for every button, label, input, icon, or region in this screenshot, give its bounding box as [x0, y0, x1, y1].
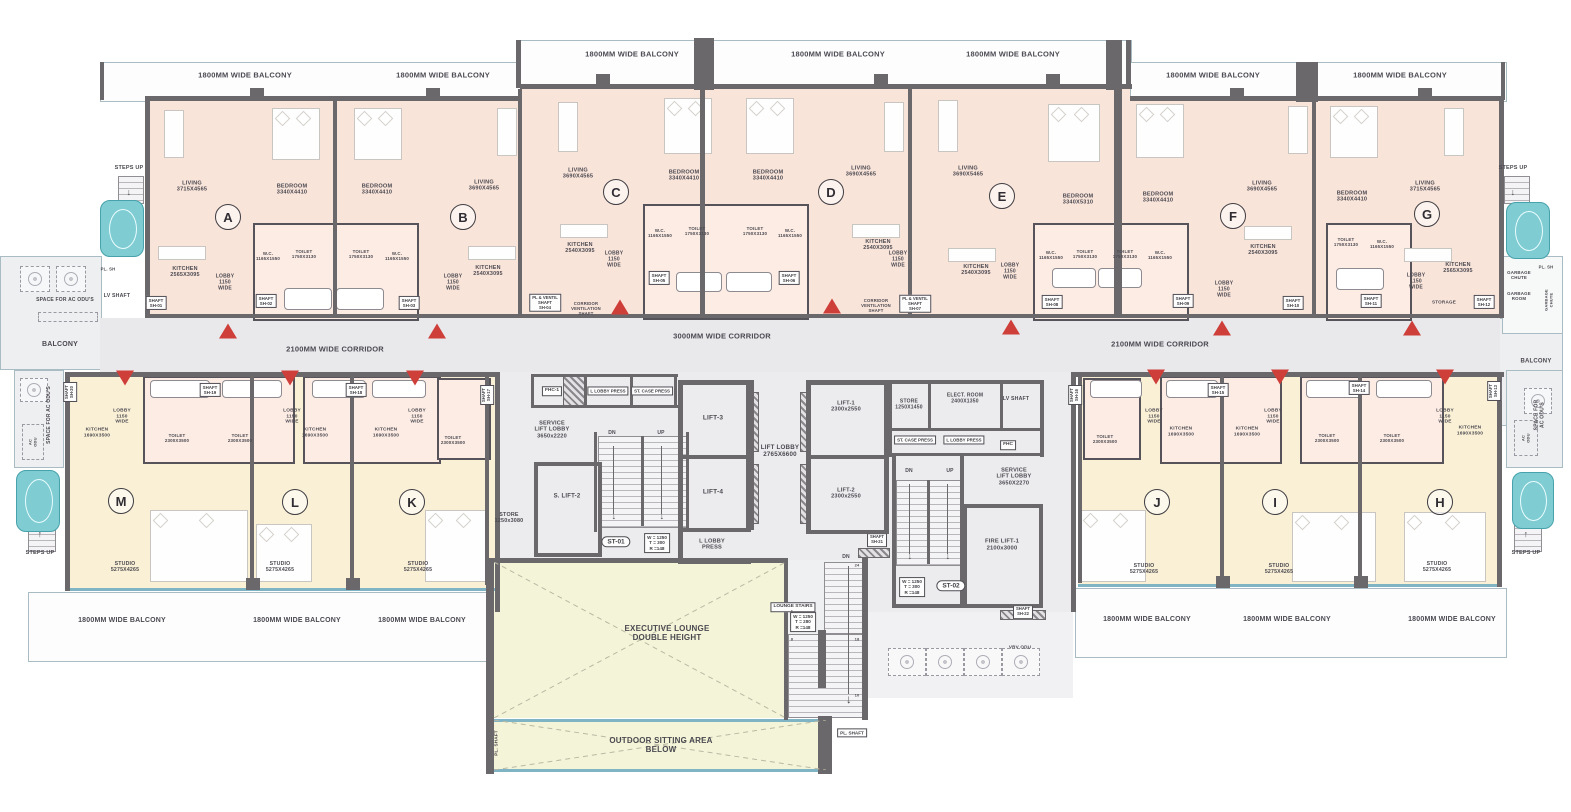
room-label: STEPS UP	[115, 165, 144, 171]
wall-segment	[531, 405, 679, 408]
room-label: LOBBY 1150 WIDE	[1001, 263, 1020, 280]
room-label: CORRIDOR VENTILATION SHAFT	[861, 299, 891, 313]
bathtub	[336, 288, 384, 310]
pillow	[1083, 513, 1099, 529]
shaft-label: L LOBBY PRESS	[943, 435, 984, 444]
pillow	[153, 513, 169, 529]
pillow	[378, 111, 394, 127]
wall-segment	[1078, 377, 1082, 583]
room-label: DN	[842, 555, 850, 561]
stair-flight	[788, 634, 864, 718]
room-label: BEDROOM 3340X4410	[1337, 191, 1368, 204]
room-label: GARBAGE ROOM	[1507, 291, 1531, 301]
room-label: 10	[855, 694, 860, 699]
room-label: CORRIDOR VENTILATION SHAFT	[571, 302, 601, 316]
furniture-piece	[497, 108, 517, 156]
room-label: LIVING 3690X4565	[563, 168, 593, 181]
room-label: ↓	[660, 511, 665, 521]
room-label: TOILET 1750X3130	[1073, 249, 1097, 259]
room-label: STUDIO 5275X4265	[1423, 562, 1451, 574]
ac-odu-unit	[1002, 648, 1040, 676]
wall-segment	[1000, 382, 1003, 429]
wall-segment	[1501, 62, 1505, 100]
room-label: SPACE FOR AC ODU'S	[47, 386, 53, 444]
wall-segment	[908, 89, 912, 314]
pillow	[770, 101, 786, 117]
entry-triangle	[1147, 370, 1165, 385]
wall-segment	[534, 553, 602, 557]
room-label: LOBBY 1150 WIDE	[216, 274, 235, 291]
room-label: W.C. 1165X1550	[1039, 250, 1063, 260]
pillow	[1354, 109, 1370, 125]
room-label: TOILET 1750X3130	[1334, 237, 1358, 247]
room-label: TOILET 2300X3500	[441, 435, 465, 445]
pillow	[749, 101, 765, 117]
bathroom-block	[643, 204, 809, 320]
jacuzzi	[16, 470, 60, 532]
room-label: ↓	[908, 551, 913, 561]
furniture-piece	[1244, 226, 1292, 240]
room-label: W.C. 1165X1550	[1148, 250, 1172, 260]
room-label: KITCHEN 2540X3095	[473, 265, 502, 277]
shaft-label: PL. SHAFT	[837, 728, 867, 737]
furniture-piece	[948, 248, 996, 262]
room-label: BEDROOM 3340X5310	[1063, 194, 1094, 207]
ac-odu-outline: AC ODU	[22, 424, 44, 460]
bed	[1136, 104, 1184, 158]
room-label: BALCONY	[1520, 359, 1551, 366]
room-label: LOBBY 1150 WIDE	[605, 251, 624, 268]
room-label: STEPS UP	[26, 550, 55, 556]
shaft-label: SHAFT SH-17	[480, 385, 494, 405]
shaft-label: PL & VENTIL SHAFT SH-04	[529, 294, 561, 312]
wall-segment	[486, 558, 494, 720]
entry-triangle	[281, 371, 299, 386]
room-label: STUDIO 5275X4265	[1130, 564, 1158, 576]
balcony-glazing-line	[1078, 584, 1498, 587]
room-label: LIFT-4	[703, 488, 723, 495]
room-label: 1800MM WIDE BALCONY	[198, 72, 292, 81]
unit-marker-d: D	[818, 179, 844, 205]
room-label: W.C. 1165X1550	[778, 228, 802, 238]
room-label: TOILET 2300X3500	[165, 433, 189, 443]
ac-odu-label: AC ODU	[1521, 433, 1530, 444]
shaft-label: PL & VENTIL SHAFT SH-07	[899, 295, 931, 313]
pillow	[1295, 515, 1311, 531]
unit-marker-l: L	[282, 489, 308, 515]
room-label: 3000MM WIDE CORRIDOR	[673, 333, 771, 342]
room-label: LOBBY 1150 WIDE	[113, 409, 131, 426]
room-label: FIRE LIFT-1 2100x3000	[985, 538, 1019, 551]
room-label: BEDROOM 3340X4410	[362, 184, 393, 197]
bathtub	[284, 288, 332, 310]
pillow	[284, 527, 300, 543]
room-label: 1800MM WIDE BALCONY	[1103, 616, 1191, 624]
room-label: S. LIFT-2	[554, 494, 581, 501]
room-label: VRV ODU	[1009, 644, 1031, 649]
shaft-label: SHAFT SH-02	[256, 294, 277, 308]
room-label: BALCONY	[42, 341, 78, 349]
wall-segment	[888, 380, 892, 457]
wall-segment	[1358, 377, 1362, 583]
room-label: L LOBBY PRESS	[699, 539, 725, 552]
shaft-label: SHAFT SH-13	[1487, 381, 1501, 401]
unit-marker-f: F	[1220, 203, 1246, 229]
shaft-label: SHAFT SH-03	[399, 296, 420, 310]
room-label: BEDROOM 3340X4410	[1143, 192, 1174, 205]
wall-segment	[928, 382, 931, 429]
room-label: W.C. 1165X1550	[648, 228, 672, 238]
furniture-piece	[560, 224, 608, 238]
wall-segment	[426, 88, 440, 100]
wall-segment	[874, 74, 888, 86]
room-label: LIFT-3	[703, 414, 723, 421]
wall-segment	[947, 484, 948, 554]
wall-segment	[678, 380, 751, 385]
room-label: 1800MM WIDE BALCONY	[791, 51, 885, 60]
room-label: 1800MM WIDE BALCONY	[966, 51, 1060, 60]
room-label: BEDROOM 3340X4410	[277, 184, 308, 197]
wall-segment	[531, 374, 678, 377]
ac-odu-unit	[964, 648, 1002, 676]
pillow	[428, 513, 444, 529]
room-label: LIFT-1 2300x2550	[831, 401, 861, 414]
room-label: 1	[791, 610, 793, 615]
room-label: STORE 1250X1450	[895, 399, 922, 411]
furniture-piece	[164, 110, 184, 158]
entry-triangle	[406, 371, 424, 386]
shaft-hatch	[563, 376, 585, 408]
unit-marker-c: C	[603, 179, 629, 205]
wall-segment	[596, 74, 610, 86]
shaft-label: SHAFT SH-08	[1042, 295, 1063, 309]
wall-segment	[1220, 377, 1224, 583]
room-label: 24	[855, 564, 860, 569]
shaft-label: SHAFT SH-16	[1068, 385, 1082, 405]
wall-segment	[888, 428, 1042, 431]
room-label: STUDIO 5275X4265	[266, 562, 294, 574]
room-label: TOILET 1750X3130	[292, 249, 316, 259]
room-label: ↓	[946, 551, 951, 561]
room-label: KITCHEN 1690X3500	[302, 427, 328, 438]
room-label: 1800MM WIDE BALCONY	[253, 617, 341, 625]
pillow	[456, 513, 472, 529]
room-label: LV SHAFT	[104, 294, 131, 300]
wall-segment	[65, 372, 70, 591]
wall-segment	[888, 380, 1042, 384]
room-label: KITCHEN 2540X3095	[961, 264, 990, 276]
room-label: LIVING 3690X5465	[953, 166, 983, 179]
room-label: LOBBY 1150 WIDE	[444, 274, 463, 291]
room-label: STEPS UP	[1499, 165, 1528, 171]
room-label: KITCHEN 1690X3500	[1234, 426, 1260, 437]
bathtub	[726, 272, 772, 292]
room-label: UP	[946, 469, 953, 475]
shaft-label: SHAFT SH-05	[649, 271, 670, 285]
wall-segment	[520, 84, 1132, 89]
room-label: LIVING 3715X4565	[1410, 181, 1440, 194]
entry-triangle	[611, 300, 629, 315]
room-label: KITCHEN 1690X3500	[373, 427, 399, 438]
unit-marker-g: G	[1414, 201, 1440, 227]
room-label: BEDROOM 3340X4410	[753, 170, 784, 183]
pillow	[199, 513, 215, 529]
wall-segment	[1418, 88, 1432, 100]
bathtub	[1376, 380, 1432, 398]
room-label: W.C. 1165X1550	[385, 251, 409, 261]
wall-segment	[100, 62, 104, 100]
wall-segment	[818, 630, 826, 688]
pillow	[1334, 515, 1350, 531]
shaft-label: SHAFT SH-10	[1283, 296, 1304, 310]
wall-segment	[516, 40, 521, 88]
wall-segment	[1497, 372, 1502, 587]
room-label: 1800MM WIDE BALCONY	[378, 617, 466, 625]
ac-odu-unit	[888, 648, 926, 676]
wall-segment	[1296, 62, 1318, 102]
furniture-piece	[884, 102, 904, 152]
room-label: TOILET 1750X3130	[685, 226, 709, 236]
shaft-label: SHAFT SH-09	[1173, 294, 1194, 308]
wall-segment	[1039, 504, 1043, 608]
pillow	[1407, 515, 1423, 531]
entry-triangle	[823, 299, 841, 314]
jacuzzi	[1512, 472, 1554, 529]
room-label: TOILET 2300X3500	[1093, 434, 1117, 444]
wall-segment	[674, 374, 677, 408]
shaft-label: ST-02	[936, 580, 965, 591]
entry-triangle	[1436, 370, 1454, 385]
room-label: 1800MM WIDE BALCONY	[1353, 72, 1447, 81]
jacuzzi	[1506, 202, 1550, 259]
wall-segment	[495, 372, 500, 612]
room-label: DN	[905, 469, 913, 475]
room-label: 2100MM WIDE CORRIDOR	[286, 346, 384, 355]
balcony-glazing-line	[494, 769, 826, 772]
shaft-label: SHAFT SH-11	[1361, 294, 1382, 308]
bed	[425, 510, 487, 582]
wall-segment	[250, 377, 254, 585]
furniture-piece	[852, 224, 900, 238]
room-label: TOILET 2300X3500	[228, 433, 252, 443]
shaft-label: SHAFT SH-21	[867, 533, 887, 547]
room-label: SPACE FOR AC ODU'S	[1534, 400, 1546, 431]
room-label: DN	[608, 431, 616, 437]
shaft-label: SHAFT SH-01	[146, 296, 167, 310]
furniture-piece	[1404, 248, 1452, 262]
wall-segment	[594, 432, 597, 532]
shaft-label: W = 1250 T = 300 R =148	[644, 533, 670, 553]
wall-segment	[909, 484, 910, 554]
ac-odu-unit	[56, 266, 86, 292]
room-label: ↓	[1511, 187, 1516, 197]
bed	[1330, 106, 1378, 158]
wall-segment	[892, 604, 964, 608]
entry-triangle	[1403, 321, 1421, 336]
wall-segment	[486, 558, 786, 563]
bathtub	[676, 272, 722, 292]
wall-segment	[1312, 101, 1316, 314]
wall-segment	[694, 38, 714, 90]
furniture-piece	[158, 246, 206, 260]
room-label: STUDIO 5275X4265	[404, 562, 432, 574]
wall-segment	[1046, 74, 1060, 86]
room-label: 2100MM WIDE CORRIDOR	[1111, 341, 1209, 350]
room-label: KITCHEN 2540X3095	[1248, 244, 1277, 256]
wall-segment	[963, 504, 1043, 508]
floor-plan-canvas: AC ODUAC ODUSHAFT SH-01SHAFT SH-02SHAFT …	[0, 0, 1571, 812]
room-label: ELECT. ROOM 2400X1350	[947, 393, 983, 405]
unit-marker-b: B	[450, 204, 476, 230]
wall-segment	[1106, 40, 1122, 90]
room-label: LOBBY 1150 WIDE	[1407, 273, 1426, 290]
furniture-piece	[468, 246, 516, 260]
wall-segment	[250, 88, 264, 100]
wall-segment	[818, 716, 832, 774]
balcony-glazing-line	[68, 588, 496, 591]
room-label: SERVICE LIFT LOBBY 3650X2270	[997, 467, 1032, 486]
pillow	[275, 111, 291, 127]
room-label: LIFT LOBBY 2765X6600	[761, 444, 799, 458]
wall-segment	[333, 101, 337, 314]
wall-segment	[963, 504, 967, 608]
shaft-label: W = 1250 T = 280 R =148	[790, 612, 816, 632]
pillow	[667, 101, 683, 117]
wall-segment	[686, 432, 689, 532]
pillow	[357, 111, 373, 127]
room-label: LV SHAFT	[1003, 397, 1030, 403]
ac-odu-unit	[20, 266, 50, 292]
wall-segment	[848, 566, 849, 694]
room-label: STUDIO 5275X4265	[1265, 564, 1293, 576]
room-label: LIVING 3690X4565	[469, 180, 499, 193]
ac-odu-label: AC ODU	[28, 437, 37, 447]
room-label: 1800MM WIDE BALCONY	[396, 72, 490, 81]
pillow	[1160, 107, 1176, 123]
room-label: 1800MM WIDE BALCONY	[585, 51, 679, 60]
shaft-hatch	[858, 548, 890, 558]
shaft-label: FHC	[1000, 440, 1016, 450]
furniture-piece	[938, 100, 958, 152]
wall-segment	[892, 456, 896, 608]
furniture-piece	[1444, 108, 1464, 156]
room-label: KITCHEN 1690X3500	[1457, 425, 1483, 436]
shaft-label: ST-01	[601, 536, 630, 547]
room-label: SPACE FOR AC ODU'S	[36, 298, 94, 304]
ac-odu-unit	[20, 378, 48, 402]
room-label: 1800MM WIDE BALCONY	[78, 617, 166, 625]
room-label: TOILET 1750X3130	[1113, 249, 1137, 259]
pillow	[1051, 107, 1067, 123]
shaft-label: ST. CASE PRESS	[631, 386, 673, 395]
room-label: KITCHEN 1690X3500	[1168, 426, 1194, 437]
wall-segment	[145, 96, 150, 318]
bed	[746, 98, 794, 154]
shaft-label: SHAFT SH-19	[200, 383, 221, 397]
wall-segment	[1230, 88, 1244, 100]
room-label: 8	[791, 638, 793, 643]
room-label: BEDROOM 3340X4410	[669, 170, 700, 183]
room-label: LOBBY 1150 WIDE	[1436, 409, 1454, 426]
entry-triangle	[1213, 321, 1231, 336]
unit-marker-h: H	[1427, 489, 1453, 515]
floor-zone	[28, 592, 499, 662]
wall-segment	[1071, 372, 1076, 612]
room-label: ↓	[846, 693, 852, 707]
pillow	[296, 111, 312, 127]
room-label: 1800MM WIDE BALCONY	[1243, 616, 1331, 624]
room-label: LOBBY 1150 WIDE	[889, 251, 908, 268]
room-label: LOBBY 1150 WIDE	[1215, 281, 1234, 298]
floor-zone	[520, 40, 1132, 90]
shaft-label: SHAFT SH-18	[346, 383, 367, 397]
wall-segment	[534, 462, 538, 557]
shaft-label: ST. CASE PRESS	[894, 435, 936, 444]
shaft-label: W = 1250 T = 300 R =148	[899, 577, 925, 597]
room-label: LOBBY 1150 WIDE	[1264, 409, 1282, 426]
room-label: PL. SHAFT	[493, 730, 498, 756]
room-label: GARBAGE CHUTE	[1507, 270, 1531, 280]
room-label: STORAGE	[1432, 299, 1456, 304]
shaft-label: L LOBBY PRESS	[587, 386, 628, 395]
shaft-label: SHAFT SH-12	[1474, 295, 1495, 309]
room-label: TOILET 2300X3500	[1380, 433, 1404, 443]
room-label: PL. SH	[101, 268, 116, 273]
pillow	[1333, 109, 1349, 125]
room-label: 18	[855, 638, 860, 643]
wall-segment	[806, 455, 889, 459]
room-label: KITCHEN 2565X3095	[1443, 262, 1472, 274]
room-label: ↓	[612, 511, 617, 521]
wall-segment	[1354, 576, 1368, 588]
stair-flight	[1504, 176, 1530, 204]
pillow	[1074, 107, 1090, 123]
wall-segment	[246, 578, 260, 590]
room-label: ↑	[1524, 529, 1529, 539]
room-label: KITCHEN 2565X3095	[170, 266, 199, 278]
room-label: STORE 1250x3080	[495, 512, 524, 524]
ac-odu-outline	[38, 312, 98, 322]
room-label: KITCHEN 1690X3500	[84, 427, 110, 438]
wall-segment	[641, 436, 644, 526]
furniture-piece	[1288, 106, 1308, 154]
room-label: TOILET 1750X3130	[349, 249, 373, 259]
room-label: LIVING 3690X4565	[846, 166, 876, 179]
wall-segment	[661, 446, 662, 514]
wall-segment	[346, 578, 360, 590]
wall-segment	[1499, 96, 1504, 318]
room-label: ↓	[127, 187, 132, 197]
wall-segment	[678, 380, 683, 564]
bed	[1048, 104, 1100, 162]
entry-triangle	[219, 324, 237, 339]
wall-segment	[784, 558, 788, 720]
room-label: LOBBY 1150 WIDE	[408, 409, 426, 426]
room-label: 1800MM WIDE BALCONY	[1408, 616, 1496, 624]
room-label: LIFT-2 2300x2550	[831, 488, 861, 501]
shaft-label: FHC-1	[542, 386, 562, 396]
room-label: GARBAGE CHUTE	[1544, 289, 1553, 311]
unit-marker-e: E	[989, 183, 1015, 209]
wall-segment	[700, 89, 705, 314]
bathtub	[1090, 380, 1142, 398]
bathtub	[1052, 268, 1096, 288]
entry-triangle	[428, 324, 446, 339]
pillow	[259, 527, 275, 543]
bed	[1292, 512, 1376, 582]
wall-segment	[350, 377, 354, 585]
room-label: TOILET 1750X3130	[743, 226, 767, 236]
